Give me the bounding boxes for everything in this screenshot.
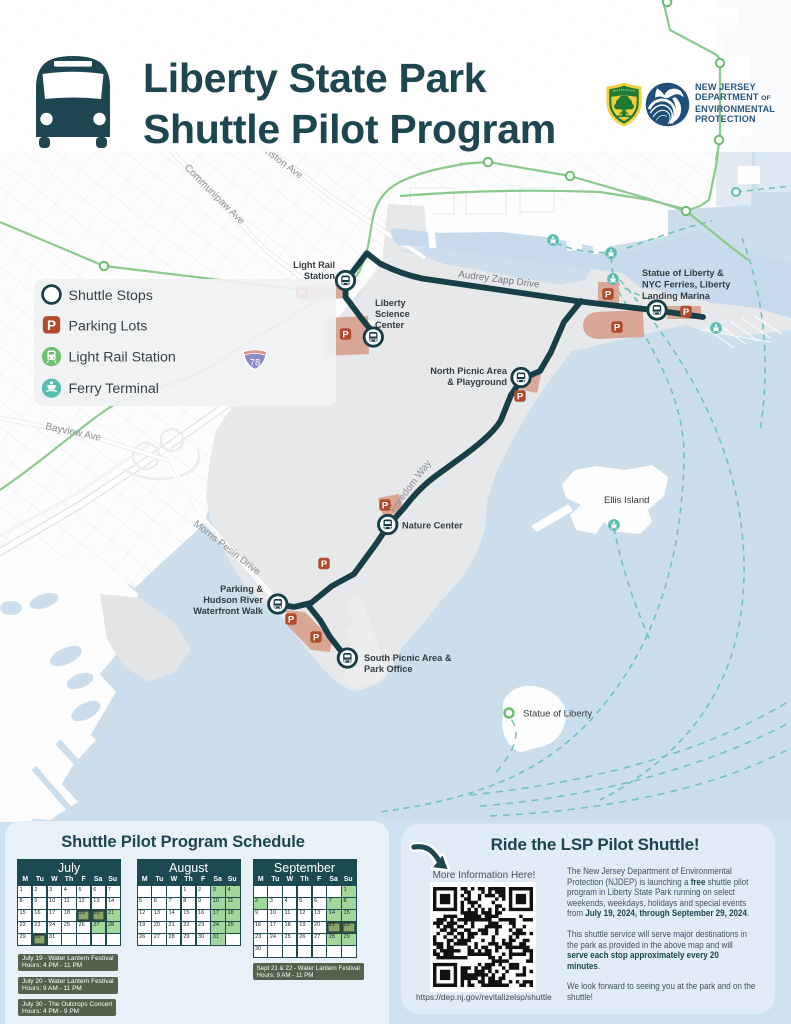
svg-text:& Playground: & Playground — [447, 377, 507, 387]
svg-text:Statue of Liberty &: Statue of Liberty & — [642, 268, 724, 278]
svg-text:Audrey Zapp Drive: Audrey Zapp Drive — [458, 269, 541, 291]
svg-text:78: 78 — [250, 358, 261, 369]
svg-text:South Picnic Area &: South Picnic Area & — [364, 653, 452, 663]
svg-text:Light Rail: Light Rail — [293, 260, 335, 270]
svg-text:Center: Center — [375, 320, 405, 330]
svg-text:Liberty: Liberty — [375, 298, 407, 308]
svg-text:Landing Marina: Landing Marina — [642, 291, 711, 301]
svg-text:North Picnic Area: North Picnic Area — [430, 366, 508, 376]
svg-text:Bayview Ave: Bayview Ave — [44, 421, 102, 444]
svg-text:Park Office: Park Office — [364, 664, 413, 674]
svg-text:Morris Pesin Drive: Morris Pesin Drive — [191, 519, 262, 578]
svg-text:Ellis Island: Ellis Island — [604, 495, 649, 506]
svg-text:Statue of Liberty: Statue of Liberty — [523, 709, 592, 720]
svg-text:Parking Lots: Parking Lots — [69, 319, 148, 335]
svg-text:Shuttle Stops: Shuttle Stops — [69, 288, 153, 304]
svg-text:Communipaw Ave: Communipaw Ave — [182, 162, 247, 227]
svg-text:Light Rail Station: Light Rail Station — [69, 350, 176, 366]
svg-text:Ferry Terminal: Ferry Terminal — [69, 381, 159, 397]
svg-text:Nature Center: Nature Center — [402, 521, 463, 531]
svg-text:Freedom Way: Freedom Way — [388, 458, 434, 514]
svg-text:Waterfront Walk: Waterfront Walk — [193, 606, 264, 616]
svg-text:Parking &: Parking & — [220, 584, 263, 594]
svg-text:Hudson River: Hudson River — [203, 595, 263, 605]
svg-text:P: P — [47, 318, 56, 333]
svg-text:NYC Ferries, Liberty: NYC Ferries, Liberty — [642, 280, 731, 290]
svg-text:Science: Science — [375, 309, 410, 319]
